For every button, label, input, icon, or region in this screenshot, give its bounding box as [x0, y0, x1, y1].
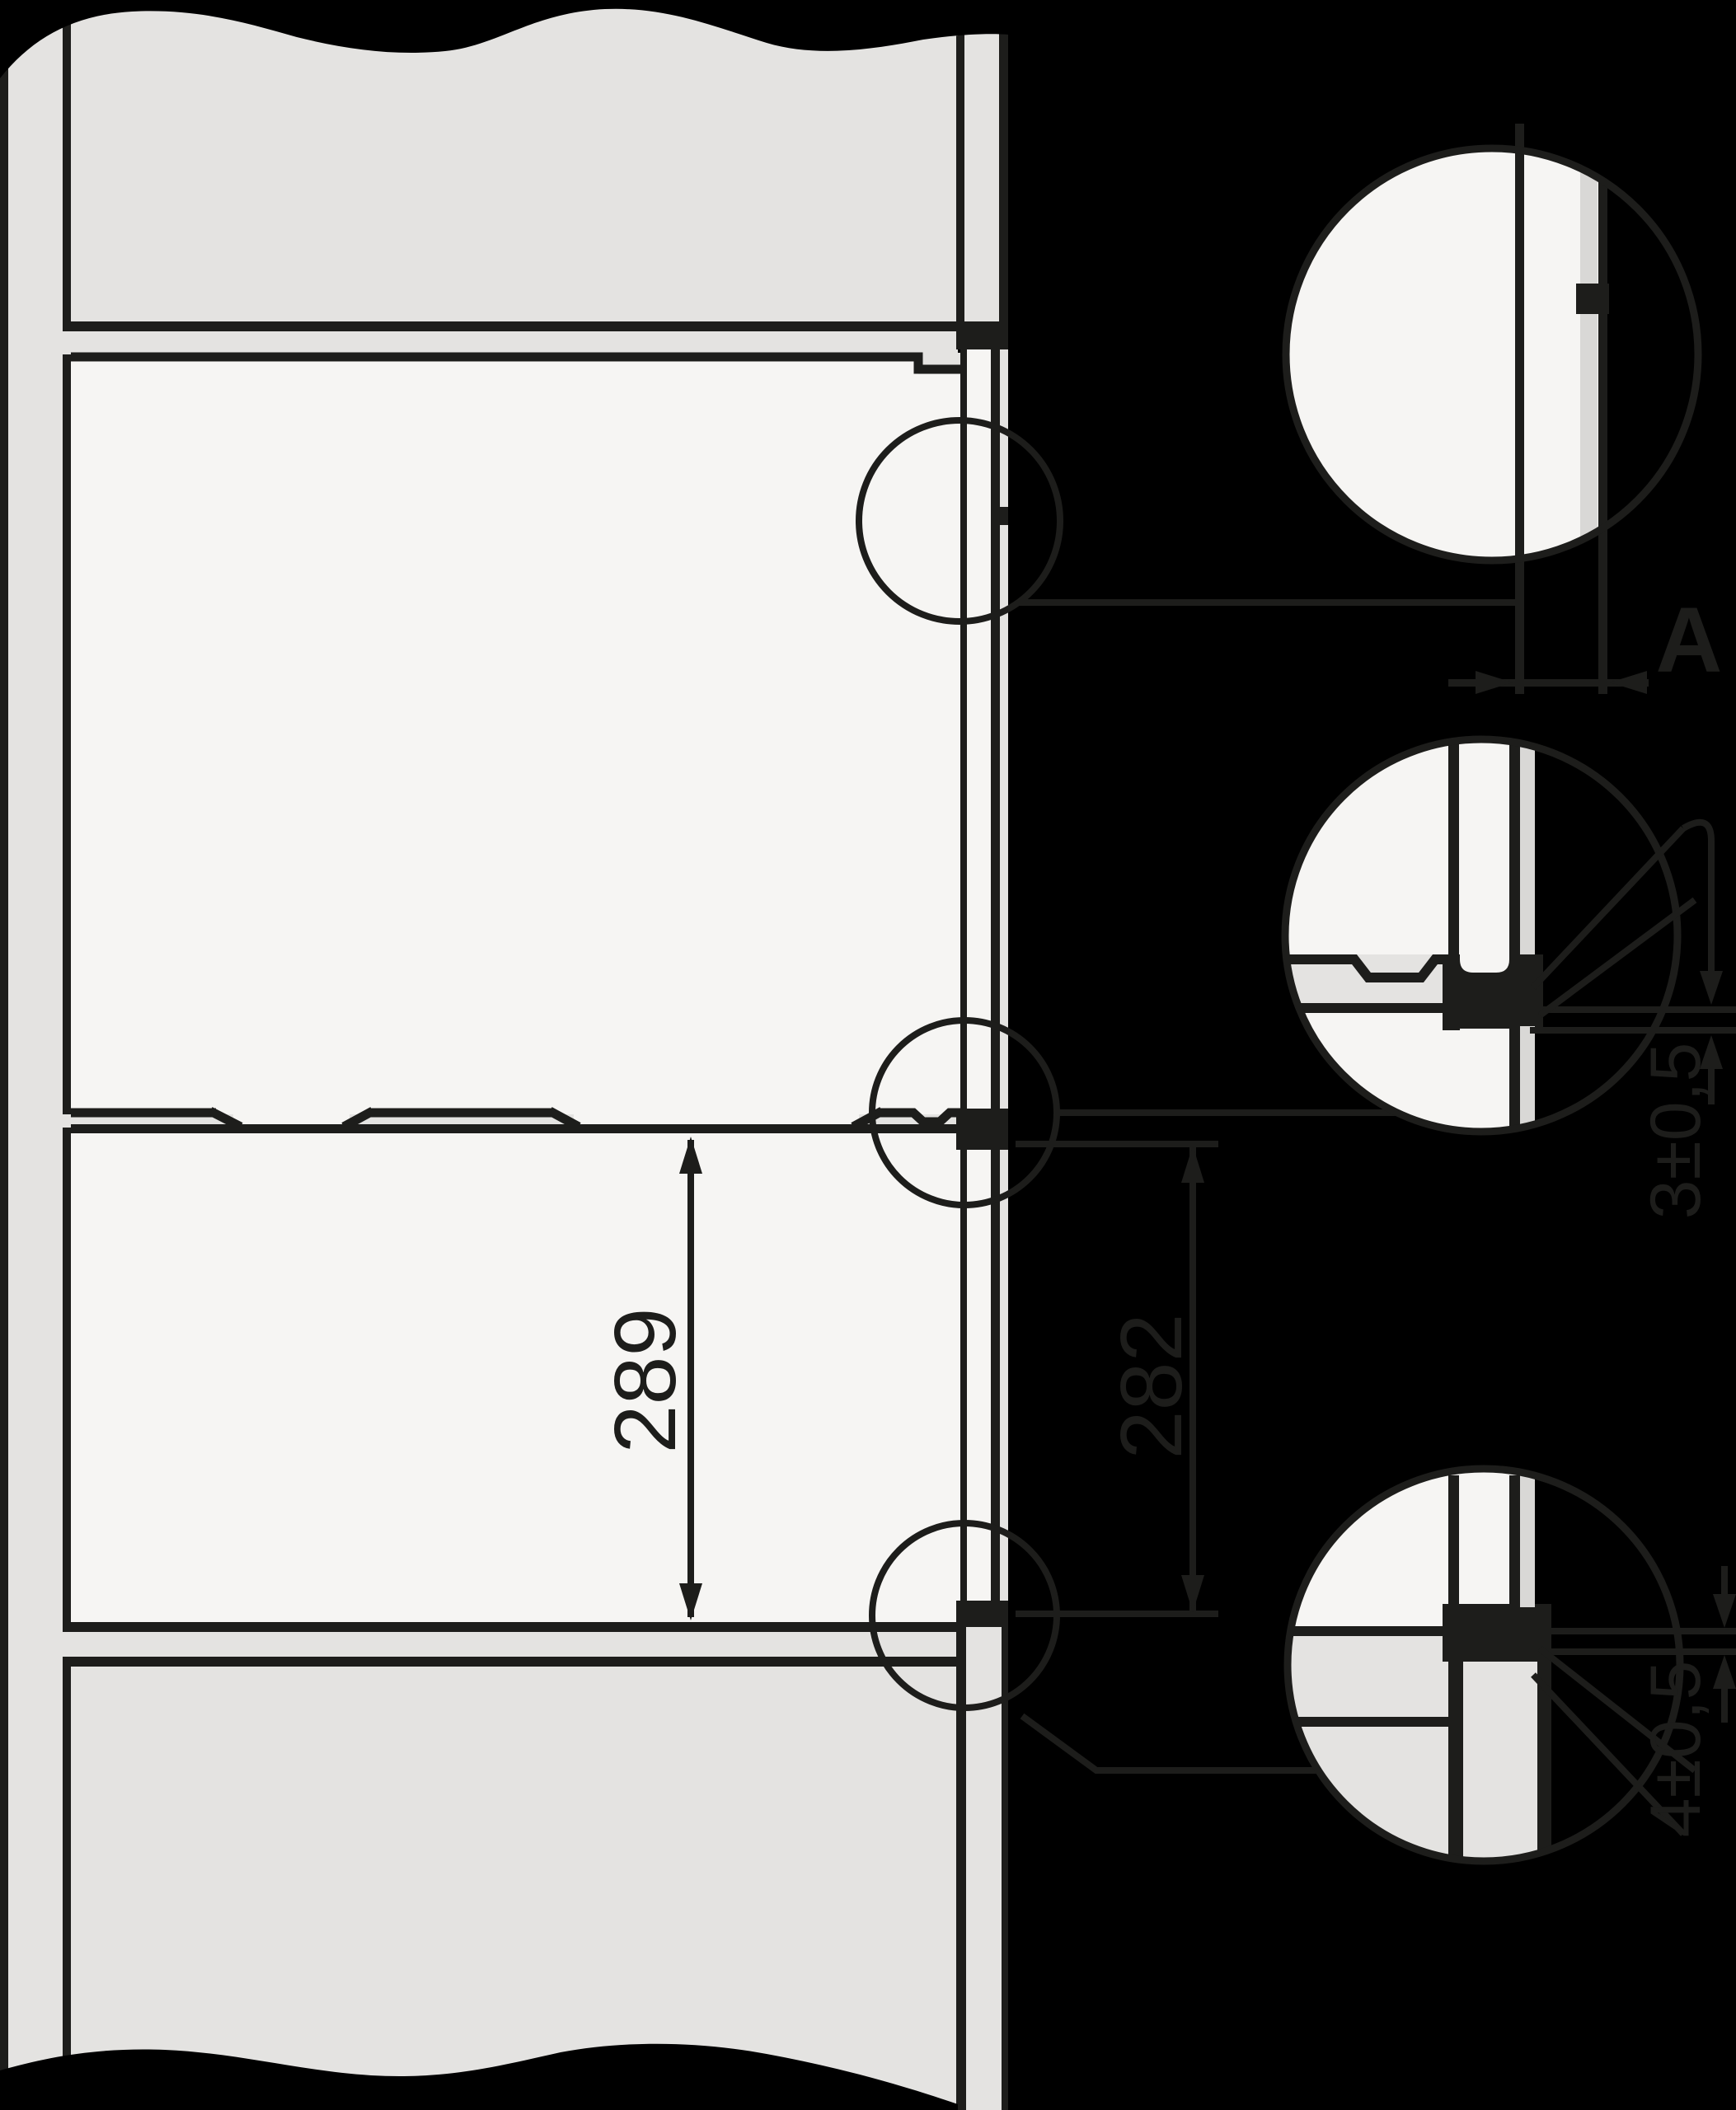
detail-bottom-panel: [1520, 1475, 1535, 1607]
side-panel-outer-line: [0, 0, 8, 2110]
detail-a-panel-strip: [1580, 150, 1598, 559]
cabinet-section: [0, 0, 1008, 2110]
front-panel-lower: [1000, 1150, 1008, 1622]
shelf-recess-right: [574, 1111, 859, 1126]
side-panel-inner-line: [63, 0, 71, 2110]
installation-diagram: 289 282 A: [0, 0, 1736, 2110]
detail-bottom-appliance-line: [1448, 1475, 1459, 1620]
diagram-canvas: 289 282 A: [0, 0, 1736, 2110]
front-gap-upper: [967, 349, 991, 1114]
shelf-recess-left: [233, 1111, 350, 1126]
detail-circle-shelf-joint: 3±0,5: [1278, 739, 1736, 1219]
lower-niche: [71, 1133, 960, 1622]
detail-circle-a: A: [1286, 124, 1722, 694]
dim-4-arrow-down: [1713, 1594, 1736, 1628]
detail-circle-bottom-joint: 4±0,5: [1288, 1469, 1736, 1867]
front-column-top-panel: [964, 0, 999, 328]
detail-a-panel-front-line: [1598, 181, 1607, 694]
detail-shelf-panel-up: [1520, 743, 1535, 954]
dim-282-arrow-up: [1181, 1146, 1204, 1183]
base-section: [71, 1667, 958, 2110]
dim-3-line-upper: [1683, 823, 1711, 973]
leader-line-bottom: [1022, 1716, 1319, 1770]
front-joint-middle: [956, 1109, 1008, 1150]
front-joint-top: [956, 321, 1008, 349]
front-gap-lower: [967, 1150, 991, 1622]
dimension-282: 282: [1016, 1144, 1218, 1614]
bottom-board-bottom-line: [71, 1657, 958, 1667]
dim-3-arrow-down: [1700, 971, 1723, 1005]
detail-shelf-appliance-line: [1448, 742, 1459, 960]
bottom-board-top-line: [71, 1622, 958, 1632]
detail-a-appliance-front-line: [1515, 124, 1524, 694]
top-compartment-bottom-line: [71, 321, 958, 331]
detail-bottom-base: [1288, 1727, 1455, 1867]
dim-282-arrow-down: [1181, 1575, 1204, 1612]
gap-a-label: A: [1656, 588, 1723, 692]
dim-4-arrow-up: [1713, 1655, 1736, 1689]
shelf-tolerance-label: 3±0,5: [1636, 1043, 1715, 1220]
side-panel: [8, 0, 63, 2110]
front-appliance-line-upper: [960, 349, 967, 1114]
front-panel-line-upper: [991, 349, 1000, 1114]
front-panel-notch-a: [991, 507, 1008, 525]
front-spacing-label: 282: [1103, 1314, 1200, 1460]
front-appliance-line-lower: [960, 1150, 967, 1622]
upper-niche: [71, 354, 960, 1114]
front-panel-upper: [1000, 349, 1008, 1114]
detail-bottom-frame-end: [1460, 1533, 1509, 1604]
front-panel-line-lower: [991, 1150, 1000, 1622]
detail-bottom-panel-line: [1509, 1475, 1520, 1607]
detail-bottom-board: [1288, 1636, 1454, 1717]
detail-shelf-panel-line-dn: [1509, 1026, 1520, 1133]
detail-bottom-door-edge-l: [1448, 1662, 1463, 1864]
front-base-line: [956, 1627, 966, 2110]
detail-shelf-upper-frame-end: [1460, 857, 1509, 973]
front-joint-bottom: [956, 1601, 1008, 1627]
detail-shelf-panel-dn: [1520, 1026, 1535, 1133]
dim-a-arrow-right: [1610, 671, 1647, 694]
front-column-top-left-line: [956, 0, 964, 328]
top-compartment: [71, 0, 958, 328]
detail-shelf-lower-frame: [1460, 1029, 1509, 1136]
intermediate-board: [63, 331, 958, 354]
dim-a-arrow-left: [1476, 671, 1513, 694]
detail-bottom-door: [1463, 1662, 1537, 1864]
front-column-top-edge: [999, 0, 1008, 328]
detail-shelf-panel-line-up: [1509, 743, 1520, 954]
bottom-board: [63, 1632, 958, 1657]
niche-height-label: 289: [597, 1308, 694, 1454]
bottom-tolerance-label: 4±0,5: [1636, 1661, 1715, 1838]
shelf-bottom-line: [71, 1124, 958, 1133]
